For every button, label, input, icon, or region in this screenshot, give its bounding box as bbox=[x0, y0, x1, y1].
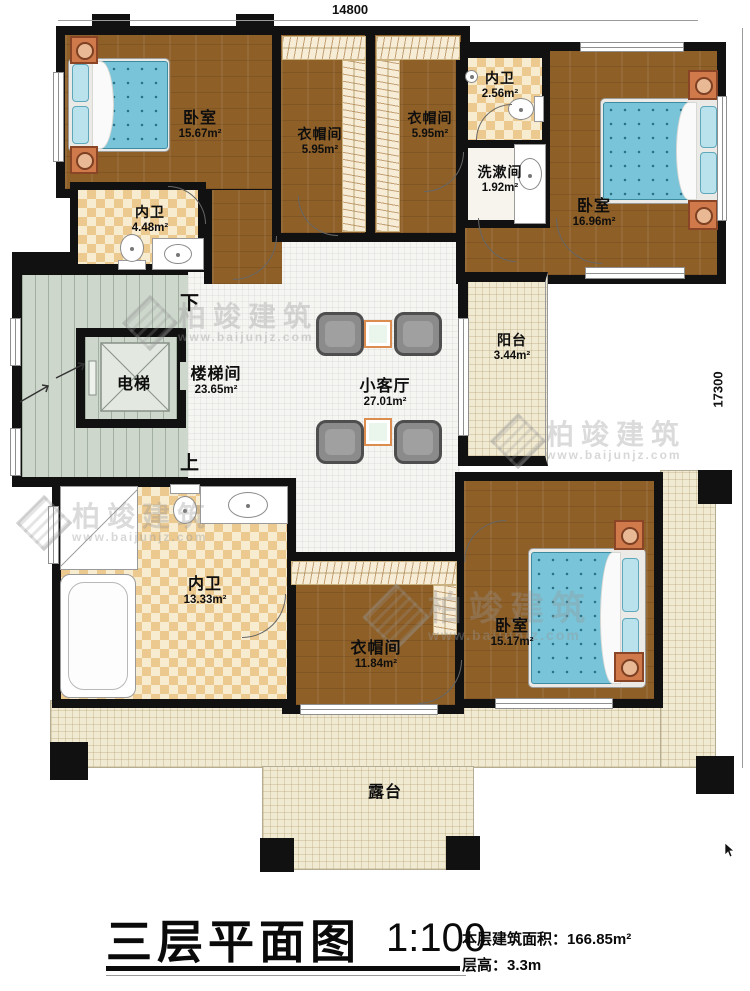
room-name: 内卫 bbox=[184, 570, 227, 594]
chair bbox=[316, 312, 364, 356]
bed-bedroom2-sheet bbox=[676, 102, 697, 200]
window bbox=[717, 96, 727, 221]
dimension-line-top bbox=[58, 20, 698, 21]
room-label-bedroom2: 卧室 16.96m² bbox=[573, 192, 616, 228]
wall-stub bbox=[236, 14, 274, 30]
wardrobe-closet2-left bbox=[376, 60, 400, 232]
wardrobe-closet1-top bbox=[282, 36, 366, 60]
side-table bbox=[364, 418, 392, 446]
window bbox=[10, 318, 21, 366]
title-underline-thin bbox=[106, 975, 466, 976]
bed-bedroom2-pillow bbox=[700, 152, 717, 194]
room-name: 阳台 bbox=[494, 330, 530, 350]
room-name: 洗漱间 bbox=[478, 162, 523, 182]
wardrobe-closet2-top bbox=[376, 36, 460, 60]
elevator-door-gap bbox=[180, 362, 188, 390]
sink-basin bbox=[164, 244, 192, 264]
room-name: 卧室 bbox=[179, 104, 222, 128]
mouse-cursor bbox=[724, 842, 736, 858]
stair-down-marker: 下 bbox=[180, 288, 199, 315]
room-label-closet3: 衣帽间 11.84m² bbox=[350, 634, 401, 670]
room-area: 1.92m² bbox=[478, 182, 523, 194]
toilet-tank bbox=[534, 96, 544, 122]
window bbox=[10, 428, 21, 476]
bed-bedroom1-pillow bbox=[72, 106, 89, 144]
room-area: 11.84m² bbox=[350, 658, 401, 670]
room-name: 衣帽间 bbox=[408, 108, 453, 128]
stair-up-marker: 上 bbox=[180, 448, 199, 475]
chair bbox=[394, 312, 442, 356]
room-label-bath-top: 内卫 2.56m² bbox=[482, 68, 518, 100]
dimension-top: 14800 bbox=[332, 2, 368, 17]
room-area: 23.65m² bbox=[190, 384, 241, 396]
terrace-pillar bbox=[696, 756, 734, 794]
title-underline bbox=[106, 966, 460, 971]
watermark-url: www.baijunjz.com bbox=[546, 449, 686, 462]
room-name: 楼梯间 bbox=[190, 360, 241, 384]
room-area: 15.17m² bbox=[491, 636, 534, 648]
window-balcony bbox=[458, 318, 469, 436]
room-label-living: 小客厅 27.01m² bbox=[359, 372, 410, 408]
side-table bbox=[364, 320, 392, 348]
terrace-pillar bbox=[260, 838, 294, 872]
room-name: 内卫 bbox=[132, 202, 168, 222]
nightstand bbox=[688, 200, 718, 230]
window bbox=[53, 72, 64, 162]
nightstand bbox=[70, 146, 98, 174]
terrace-floor-right bbox=[660, 470, 716, 768]
room-area: 4.48m² bbox=[132, 222, 168, 234]
wall-stub bbox=[92, 14, 130, 30]
terrace-pillar bbox=[698, 470, 732, 504]
room-area: 3.44m² bbox=[494, 350, 530, 362]
room-label-stairwell: 楼梯间 23.65m² bbox=[190, 360, 241, 396]
wardrobe-closet1-right bbox=[342, 60, 366, 232]
toilet-tank bbox=[170, 484, 200, 494]
wardrobe-closet3-right bbox=[433, 585, 457, 635]
room-name: 内卫 bbox=[482, 68, 518, 88]
room-name: 小客厅 bbox=[359, 372, 410, 396]
floor-plan-canvas: 柏竣建筑 www.baijunjz.com 柏竣建筑 www.baijunjz.… bbox=[0, 0, 750, 991]
wardrobe-closet3-top bbox=[291, 561, 457, 585]
room-name: 电梯 bbox=[117, 370, 151, 394]
watermark-brand: 柏竣建筑 bbox=[546, 420, 686, 449]
bed-bedroom1-pillow bbox=[72, 64, 89, 102]
window bbox=[495, 698, 613, 709]
room-area: 16.96m² bbox=[573, 216, 616, 228]
toilet-bowl bbox=[120, 234, 144, 262]
room-label-elevator: 电梯 bbox=[117, 370, 151, 394]
floor-drain-icon bbox=[465, 70, 478, 83]
room-name: 露台 bbox=[368, 778, 402, 802]
room-name: 衣帽间 bbox=[350, 634, 401, 658]
terrace-door-opening bbox=[300, 704, 438, 715]
wall-stub bbox=[12, 252, 70, 267]
room-name: 衣帽间 bbox=[298, 124, 343, 144]
terrace-pillar bbox=[446, 836, 480, 870]
room-label-bath-left: 内卫 4.48m² bbox=[132, 202, 168, 234]
window bbox=[580, 42, 684, 52]
room-label-closet1: 衣帽间 5.95m² bbox=[298, 124, 343, 156]
room-label-closet2: 衣帽间 5.95m² bbox=[408, 108, 453, 140]
chair bbox=[316, 420, 364, 464]
bed-bedroom3-pillow bbox=[622, 558, 639, 612]
room-area: 2.56m² bbox=[482, 88, 518, 100]
toilet-bowl bbox=[173, 496, 197, 524]
room-area: 27.01m² bbox=[359, 396, 410, 408]
plan-title: 三层平面图 bbox=[106, 906, 361, 972]
nightstand bbox=[614, 652, 644, 682]
room-label-washroom: 洗漱间 1.92m² bbox=[478, 162, 523, 194]
room-label-bedroom1: 卧室 15.67m² bbox=[179, 104, 222, 140]
floor-area-note: 本层建筑面积：166.85m² bbox=[462, 928, 631, 949]
dimension-right: 17300 bbox=[711, 371, 726, 407]
chair bbox=[394, 420, 442, 464]
room-name: 卧室 bbox=[491, 612, 534, 636]
terrace-pillar bbox=[50, 742, 88, 780]
room-name: 卧室 bbox=[573, 192, 616, 216]
dimension-line-right bbox=[742, 28, 743, 768]
room-label-bath-bottom: 内卫 13.33m² bbox=[184, 570, 227, 606]
bed-bedroom2-pillow bbox=[700, 106, 717, 148]
room-label-bedroom3: 卧室 15.17m² bbox=[491, 612, 534, 648]
nightstand bbox=[614, 520, 644, 550]
room-area: 15.67m² bbox=[179, 128, 222, 140]
sink-basin bbox=[228, 492, 268, 518]
shower-area bbox=[60, 486, 138, 570]
nightstand bbox=[688, 70, 718, 100]
room-area: 5.95m² bbox=[408, 128, 453, 140]
window bbox=[48, 506, 59, 564]
stair-direction-arrow bbox=[18, 358, 88, 408]
window bbox=[585, 267, 685, 279]
room-area: 13.33m² bbox=[184, 594, 227, 606]
room-label-balcony: 阳台 3.44m² bbox=[494, 330, 530, 362]
room-balcony bbox=[458, 272, 548, 466]
bathtub-basin bbox=[68, 582, 128, 690]
floor-height-note: 层高：3.3m bbox=[462, 954, 541, 975]
nightstand bbox=[70, 36, 98, 64]
room-label-terrace: 露台 bbox=[368, 778, 402, 802]
room-area: 5.95m² bbox=[298, 144, 343, 156]
